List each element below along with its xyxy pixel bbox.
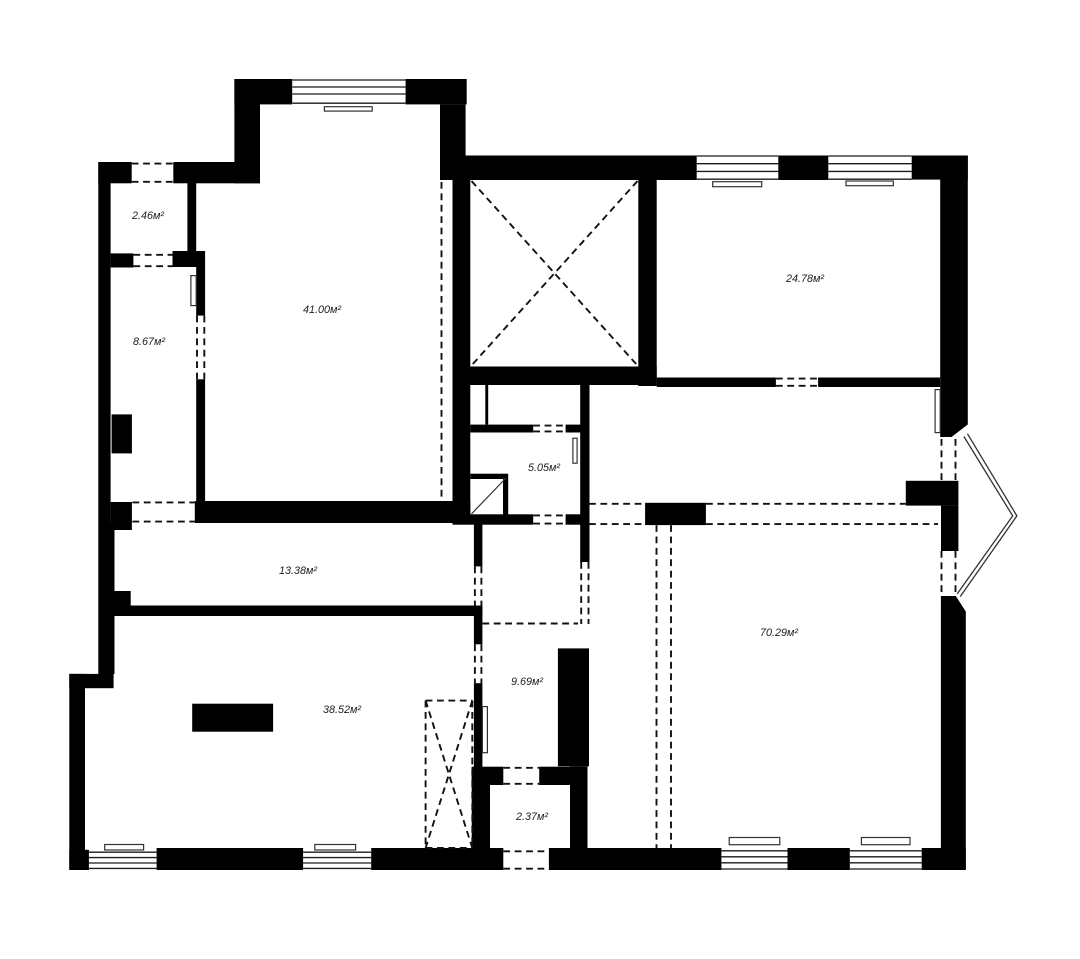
- svg-text:9.69м²: 9.69м²: [511, 676, 543, 688]
- svg-text:70.29м²: 70.29м²: [760, 627, 798, 639]
- svg-text:8.67м²: 8.67м²: [133, 336, 165, 348]
- svg-text:13.38м²: 13.38м²: [279, 565, 317, 577]
- svg-text:5.05м²: 5.05м²: [528, 462, 560, 474]
- svg-text:24.78м²: 24.78м²: [785, 273, 824, 285]
- svg-text:41.00м²: 41.00м²: [303, 304, 341, 316]
- svg-text:2.37м²: 2.37м²: [515, 811, 548, 823]
- svg-text:38.52м²: 38.52м²: [323, 704, 361, 716]
- svg-text:2.46м²: 2.46м²: [131, 210, 164, 222]
